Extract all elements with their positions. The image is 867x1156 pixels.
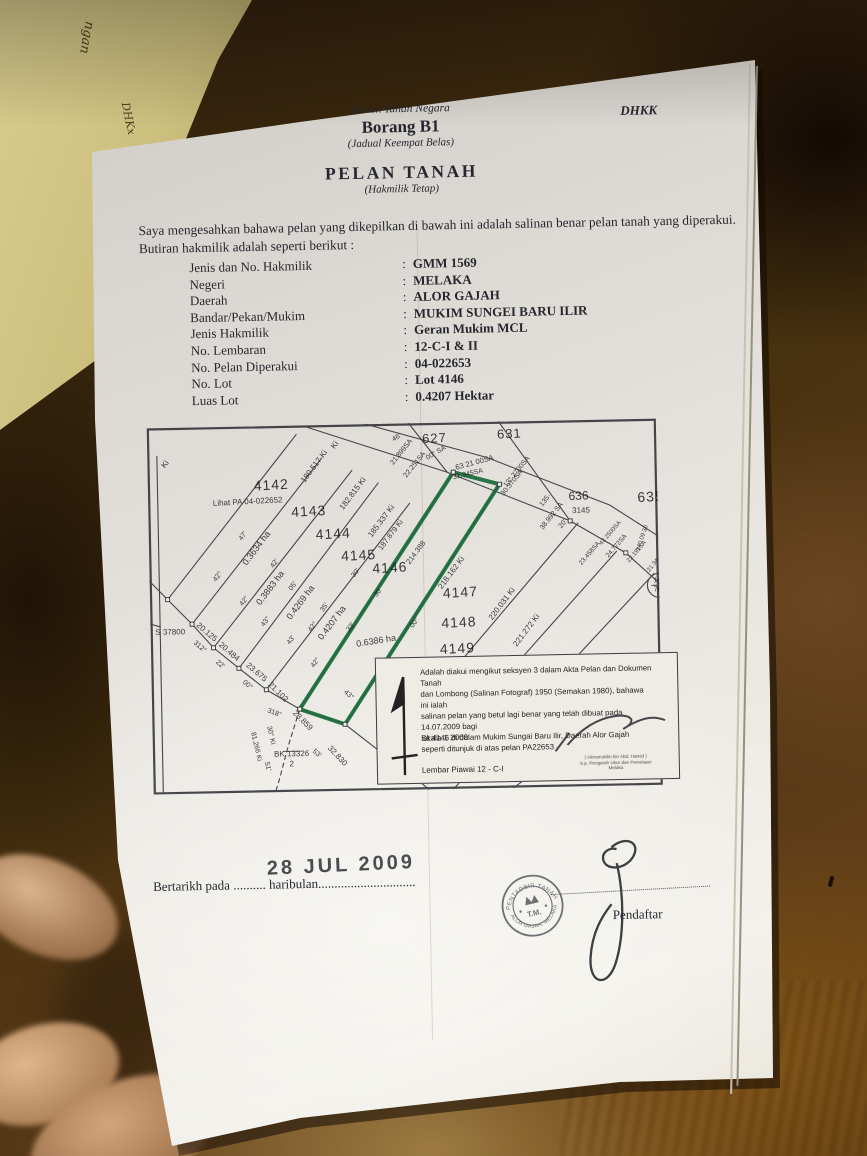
plan-label: 631 [497,425,522,441]
plan-label: 4148 [441,613,477,631]
plan-label: 4146 [372,558,408,576]
plan-label: 4147 [442,583,478,601]
plan-label: 0.6386 ha [355,633,396,649]
plan-label: 318° [266,707,282,719]
survey-vertex-marker [624,551,628,555]
plan-label: 42° [238,594,251,607]
plan-label: 51' [263,761,272,771]
plan-label: 4142 [253,476,289,494]
plan-label: 47' [238,531,249,543]
plan-label: 312° [192,639,208,655]
detail-colon: : [402,256,406,273]
cadastral-plan: 4142414341444145414641474148414962763163… [146,418,663,795]
plan-label: 636 [568,488,589,503]
survey-vertex-marker [568,519,572,523]
sheet-label: Lembar Piawai 12 - C-I [422,764,504,775]
detail-colon: : [405,389,409,406]
detail-colon: : [403,306,407,323]
plan-label: 00° [408,616,421,629]
plan-label: 43° [342,688,355,701]
survey-vertex-marker [212,646,216,650]
detail-value: Geran Mukim MCL [414,320,528,339]
plan-label: 635 [637,488,663,505]
plan-label: 30° Ki [265,725,277,746]
signatory-line: Melaka [554,764,678,772]
plan-label: BK 13326 [274,749,310,759]
plan-label: Ki [329,439,341,450]
registrar-label: Pendaftar [613,906,663,923]
plan-label: 2 [289,759,294,768]
survey-vertex-marker [264,688,268,692]
plan-label: 30' [350,567,361,579]
plan-label: Lihat PA 04-022652 [213,495,284,508]
plan-label: 22' [214,659,225,670]
plan-label: 4143 [291,502,327,520]
plan-label: 35' [319,602,330,614]
document-content: Kanun Tanah Negara Borang B1 (Jadual Kee… [0,0,867,1156]
detail-label: Luas Lot [192,389,405,410]
plan-label: 42' [269,558,280,570]
plan-label: 42° [211,570,224,583]
surveyor-signature [549,705,675,757]
detail-value: Lot 4146 [415,371,464,389]
scale-label: Skala 1 2000 [421,733,468,743]
details-table: Jenis dan No. Hakmilik:GMM 1569Negeri:ME… [189,253,589,410]
detail-colon: : [403,289,407,306]
registrar-signature [549,818,667,992]
plan-label: 32.830 [326,744,350,768]
plan-label: 180.517 Ki [299,448,329,484]
corner-code: DHKK [620,102,657,119]
plan-label: 42° [306,620,319,633]
plan-label: 23.458SA [578,540,602,567]
detail-value: MELAKA [413,271,472,289]
detail-colon: : [403,322,407,339]
plan-label: 4144 [315,525,351,543]
plan-label: 43' [286,635,297,647]
detail-colon: : [404,339,408,356]
plan-label: 42° [309,656,322,669]
detail-value: GMM 1569 [413,255,477,273]
plan-label: 135· [539,493,553,508]
plan-label: 00° SA [424,444,447,462]
plan-label: 182.815 Ki [338,475,368,511]
detail-value: ALOR GAJAH [413,287,500,305]
stamp-center-text: T.M. [526,907,542,919]
plan-label: 221.272 Ki [511,612,541,648]
form-header: Kanun Tanah Negara Borang B1 (Jadual Kee… [220,100,582,199]
detail-value: 04-022653 [415,354,472,372]
survey-vertex-marker [166,598,170,602]
detail-colon: : [404,372,408,389]
survey-vertex-marker [237,666,241,670]
plan-label: 220.031 Ki [487,586,517,622]
survey-vertex-marker [497,482,501,486]
survey-vertex-marker [190,622,194,626]
plan-label: Ki [159,458,171,469]
survey-vertex-marker [343,722,347,726]
plan-label: 4149 [439,639,475,657]
plan-label: 141 [653,577,663,584]
plan-label: S 37800 [155,627,186,637]
detail-value: 12-C-I & II [414,338,478,356]
plan-label: 53' [311,748,322,759]
plan-label: 81.266 Ki [249,731,263,762]
detail-colon: : [404,356,408,373]
certifying-paragraph: Saya mengesahkan bahawa pelan yang dikep… [138,210,763,257]
plan-label: 761 [654,586,664,593]
signatory-caption: ( Akmaruddin bin Abd. Hamid )b.p. Pengar… [554,753,678,772]
detail-value: MUKIM SUNGEI BARU ILIR [414,302,588,322]
detail-value: 0.4207 Hektar [415,387,494,405]
plan-label: 627 [422,430,447,446]
photo-of-land-title-plan: ngan DHKx Kanun Tanah Negara Borang B1 (… [0,0,867,1156]
detail-colon: : [402,273,406,290]
certification-box: Adalah diakui mengikut seksyen 3 dalam A… [375,652,680,785]
plan-label: 00° [241,678,254,691]
plan-label: 3145 [572,506,591,515]
north-arrow-icon [381,663,419,780]
plan-label: 30' [373,587,384,599]
